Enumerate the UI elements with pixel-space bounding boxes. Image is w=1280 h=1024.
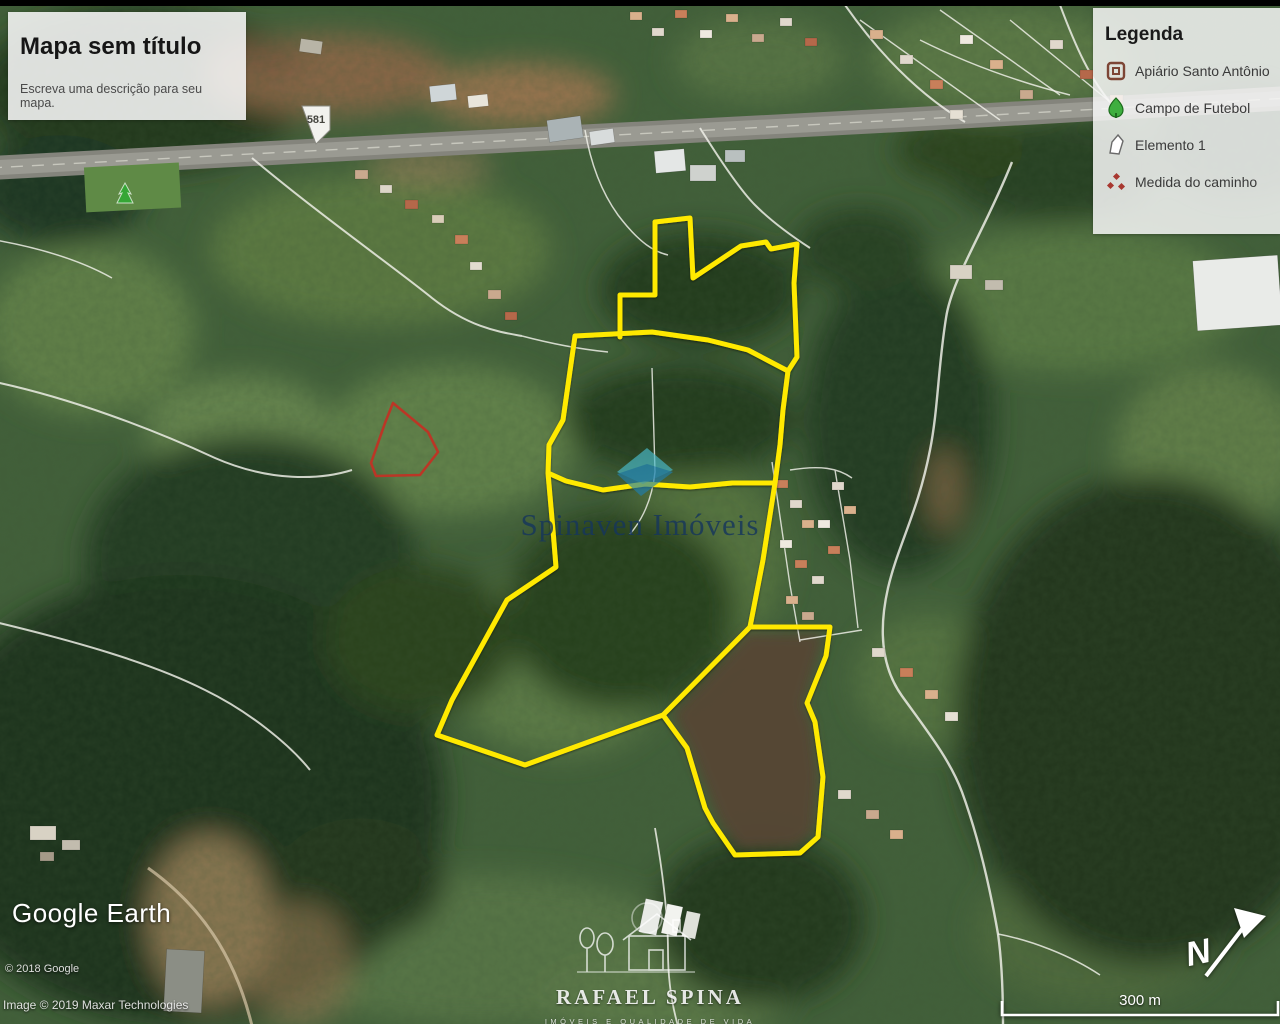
polygon-shape-icon <box>1105 134 1127 156</box>
tree-marker-icon <box>1105 97 1127 119</box>
scale-bar <box>1000 999 1280 1019</box>
apiary-marker-icon <box>1105 60 1127 82</box>
legend-item-label: Elemento 1 <box>1135 137 1206 153</box>
legend-item-apiario: Apiário Santo Antônio <box>1105 60 1272 82</box>
legend-item-campo: Campo de Futebol <box>1105 97 1272 119</box>
legend-title: Legenda <box>1105 24 1272 46</box>
legend-item-label: Apiário Santo Antônio <box>1135 63 1270 79</box>
copyright-maxar: Image © 2019 Maxar Technologies <box>3 998 188 1012</box>
legend-item-label: Medida do caminho <box>1135 174 1257 190</box>
satellite-map-canvas[interactable]: 581 <box>0 0 1280 1024</box>
north-compass-icon: N <box>1178 898 1273 990</box>
legend-item-elemento: Elemento 1 <box>1105 134 1272 156</box>
map-description-placeholder: Escreva uma descrição para seu mapa. <box>20 82 236 110</box>
map-title: Mapa sem título <box>20 34 236 60</box>
road-shield-label: 581 <box>307 114 325 126</box>
legend-item-medida: Medida do caminho <box>1105 171 1272 193</box>
copyright-google: © 2018 Google <box>5 963 79 975</box>
legend-item-label: Campo de Futebol <box>1135 100 1250 116</box>
map-title-box: Mapa sem título Escreva uma descrição pa… <box>8 12 246 120</box>
path-measure-icon <box>1105 171 1127 193</box>
legend-panel: Legenda Apiário Santo Antônio Campo de F… <box>1093 8 1280 234</box>
google-earth-map-view: 581 Mapa sem título Escreva uma descriçã… <box>0 0 1280 1024</box>
top-black-bar <box>0 0 1280 6</box>
compass-label: N <box>1182 932 1215 975</box>
google-earth-logo: Google Earth <box>12 898 171 929</box>
